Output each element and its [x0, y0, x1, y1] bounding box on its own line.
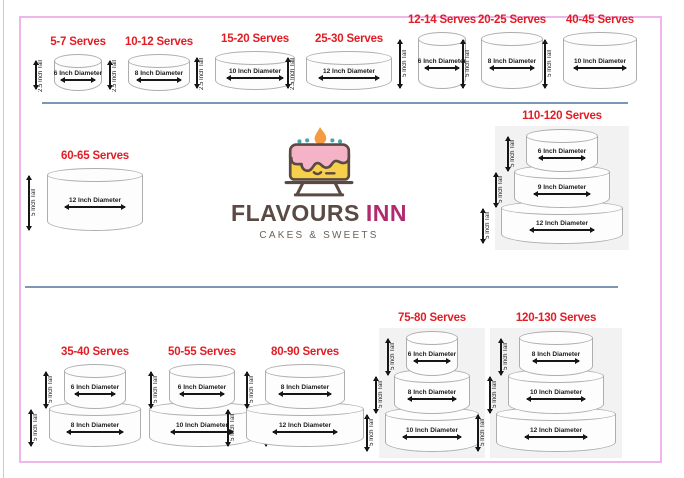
height-label: 2.5 Inch Tall [199, 58, 205, 90]
diameter-arrow-icon [65, 206, 125, 208]
cake-tier: 5 Inch Tall 8 Inch Diameter [519, 338, 593, 376]
diameter-label: 12 Inch Diameter [530, 427, 582, 434]
diameter-arrow-icon [61, 79, 95, 81]
serves-heading: 40-45 Serves [566, 14, 634, 26]
brand-tagline: CAKES & SWEETS [259, 230, 378, 241]
height-label: 5 Inch Tall [480, 419, 486, 446]
diameter-label: 8 Inch Diameter [135, 70, 183, 77]
height-dimension: 2.5 Inch Tall [196, 58, 205, 90]
height-arrow-icon [30, 410, 32, 446]
serves-heading: 80-90 Serves [271, 346, 339, 358]
cake-tier: 5 Inch Tall 8 Inch Diameter [49, 409, 141, 447]
height-dimension: 5 Inch Tall [246, 372, 255, 408]
height-dimension: 5 Inch Tall [507, 137, 516, 171]
diameter-arrow-icon [75, 393, 115, 395]
serves-heading: 60-65 Serves [61, 150, 129, 162]
height-label: 5 Inch Tall [33, 414, 39, 441]
cake-tier: 5 Inch Tall 6 Inch Diameter [418, 39, 466, 89]
diameter-arrow-icon [408, 398, 456, 400]
serves-heading: 110-120 Serves [522, 110, 602, 122]
height-arrow-icon [375, 377, 377, 413]
height-arrow-icon [109, 61, 111, 89]
height-label: 5 Inch Tall [492, 381, 498, 408]
height-label: 2.5 Inch Tall [290, 58, 296, 90]
diameter-arrow-icon [273, 431, 337, 433]
height-label: 2.5 Inch Tall [112, 60, 118, 92]
height-dimension: 5 Inch Tall [544, 40, 553, 88]
height-label: 5 Inch Tall [498, 176, 504, 203]
serves-heading: 120-130 Serves [516, 312, 596, 324]
height-dimension: 5 Inch Tall [28, 176, 37, 230]
height-dimension: 5 Inch Tall [227, 410, 236, 446]
cake-tier: 2.5 Inch Tall 8 Inch Diameter [128, 61, 190, 91]
diameter-label: 8 Inch Diameter [488, 58, 536, 65]
height-dimension: 2.5 Inch Tall [287, 58, 296, 90]
diameter-label: 8 Inch Diameter [71, 422, 119, 429]
diameter-label: 12 Inch Diameter [69, 197, 121, 204]
height-dimension: 5 Inch Tall [482, 209, 491, 243]
height-arrow-icon [150, 372, 152, 408]
height-arrow-icon [482, 209, 484, 243]
cake-size-group: 75-80 Serves 5 Inch Tall 6 Inch Diameter… [374, 312, 490, 458]
diameter-arrow-icon [67, 431, 123, 433]
diameter-arrow-icon [527, 398, 585, 400]
diameter-label: 10 Inch Diameter [574, 58, 626, 65]
cake-size-group: 110-120 Serves 5 Inch Tall 6 Inch Diamet… [486, 110, 638, 250]
height-label: 5 Inch Tall [402, 50, 408, 77]
cake-tier: 5 Inch Tall 6 Inch Diameter [169, 371, 235, 409]
diameter-label: 10 Inch Diameter [229, 68, 281, 75]
diameter-arrow-icon [533, 360, 579, 362]
cake-tier: 2.5 Inch Tall 6 Inch Diameter [54, 61, 102, 91]
diameter-arrow-icon [403, 436, 461, 438]
diameter-label: 12 Inch Diameter [279, 422, 331, 429]
height-arrow-icon [287, 58, 289, 88]
diameter-arrow-icon [279, 393, 331, 395]
diameter-arrow-icon [319, 77, 379, 79]
cake-tier: 5 Inch Tall 12 Inch Diameter [246, 409, 364, 447]
height-dimension: 2.5 Inch Tall [109, 60, 118, 92]
height-arrow-icon [28, 176, 30, 230]
cake-serving-guide: 5-7 Serves 2.5 Inch Tall 6 Inch Diameter… [0, 0, 684, 478]
cake-tier: 5 Inch Tall 8 Inch Diameter [265, 371, 345, 409]
brand-name-primary: FLAVOURS [231, 200, 360, 227]
page-edge-line [3, 0, 4, 478]
cake-tier: 5 Inch Tall 6 Inch Diameter [526, 136, 598, 172]
cake-tier: 5 Inch Tall 9 Inch Diameter [514, 172, 610, 208]
height-arrow-icon [366, 415, 368, 451]
diameter-label: 8 Inch Diameter [281, 384, 329, 391]
group-panel: 5 Inch Tall 6 Inch Diameter 5 Inch Tall … [495, 126, 629, 250]
height-dimension: 5 Inch Tall [495, 173, 504, 207]
diameter-label: 6 Inch Diameter [538, 148, 586, 155]
diameter-arrow-icon [490, 67, 534, 69]
height-arrow-icon [489, 377, 491, 413]
cake-size-group: 40-45 Serves 5 Inch Tall 10 Inch Diamete… [546, 14, 654, 89]
cake-tier: 5 Inch Tall 10 Inch Diameter [149, 409, 255, 447]
diameter-label: 12 Inch Diameter [536, 220, 588, 227]
diameter-arrow-icon [525, 436, 587, 438]
serves-heading: 25-30 Serves [315, 33, 383, 45]
height-label: 5 Inch Tall [485, 212, 491, 239]
diameter-label: 8 Inch Diameter [408, 389, 456, 396]
diameter-label: 12 Inch Diameter [323, 68, 375, 75]
height-dimension: 5 Inch Tall [500, 339, 509, 375]
height-arrow-icon [477, 415, 479, 451]
height-label: 5 Inch Tall [153, 376, 159, 403]
height-arrow-icon [387, 339, 389, 375]
height-arrow-icon [500, 339, 502, 375]
cake-tier: 2.5 Inch Tall 12 Inch Diameter [306, 58, 392, 90]
middle-section-divider [25, 286, 618, 288]
height-label: 5 Inch Tall [378, 381, 384, 408]
height-label: 5 Inch Tall [31, 189, 37, 216]
serves-heading: 50-55 Serves [168, 346, 236, 358]
height-label: 5 Inch Tall [503, 343, 509, 370]
serves-heading: 5-7 Serves [50, 36, 106, 48]
diameter-arrow-icon [180, 393, 224, 395]
height-dimension: 5 Inch Tall [477, 415, 486, 451]
height-dimension: 5 Inch Tall [150, 372, 159, 408]
height-arrow-icon [495, 173, 497, 207]
cake-tier: 5 Inch Tall 12 Inch Diameter [501, 208, 623, 244]
diameter-arrow-icon [574, 67, 626, 69]
cake-tier: 5 Inch Tall 10 Inch Diameter [563, 39, 637, 89]
height-arrow-icon [507, 137, 509, 171]
cake-tier: 2.5 Inch Tall 10 Inch Diameter [215, 58, 295, 90]
group-panel: 5 Inch Tall 6 Inch Diameter 5 Inch Tall … [379, 328, 485, 458]
brand-name-secondary: INN [366, 200, 407, 227]
cake-tier: 5 Inch Tall 12 Inch Diameter [47, 175, 143, 231]
diameter-arrow-icon [425, 67, 459, 69]
diameter-label: 8 Inch Diameter [532, 351, 580, 358]
height-arrow-icon [45, 372, 47, 408]
height-label: 5 Inch Tall [230, 414, 236, 441]
height-label: 2.5 Inch Tall [38, 60, 44, 92]
height-dimension: 5 Inch Tall [45, 372, 54, 408]
diameter-label: 6 Inch Diameter [178, 384, 226, 391]
serves-heading: 75-80 Serves [398, 312, 466, 324]
diameter-label: 10 Inch Diameter [406, 427, 458, 434]
diameter-label: 10 Inch Diameter [176, 422, 228, 429]
height-arrow-icon [35, 61, 37, 89]
diameter-arrow-icon [539, 157, 585, 159]
serves-heading: 35-40 Serves [61, 346, 129, 358]
height-arrow-icon [246, 372, 248, 408]
height-arrow-icon [544, 40, 546, 88]
cake-size-group: 60-65 Serves 5 Inch Tall 12 Inch Diamete… [28, 150, 162, 231]
diameter-label: 9 Inch Diameter [538, 184, 586, 191]
diameter-arrow-icon [530, 229, 594, 231]
height-label: 5 Inch Tall [510, 140, 516, 167]
height-arrow-icon [462, 40, 464, 88]
cake-tier: 5 Inch Tall 6 Inch Diameter [406, 338, 458, 376]
serves-heading: 20-25 Serves [478, 14, 546, 26]
cake-tier: 5 Inch Tall 8 Inch Diameter [394, 376, 470, 414]
diameter-arrow-icon [227, 77, 283, 79]
height-dimension: 5 Inch Tall [399, 40, 408, 88]
diameter-label: 10 Inch Diameter [530, 389, 582, 396]
cake-tier: 5 Inch Tall 10 Inch Diameter [508, 376, 604, 414]
cake-tier: 5 Inch Tall 12 Inch Diameter [496, 414, 616, 452]
cake-tier: 5 Inch Tall 10 Inch Diameter [385, 414, 479, 452]
height-label: 5 Inch Tall [465, 50, 471, 77]
height-dimension: 5 Inch Tall [387, 339, 396, 375]
height-label: 5 Inch Tall [369, 419, 375, 446]
height-dimension: 5 Inch Tall [462, 40, 471, 88]
height-label: 5 Inch Tall [390, 343, 396, 370]
height-label: 5 Inch Tall [547, 50, 553, 77]
group-panel: 5 Inch Tall 8 Inch Diameter 5 Inch Tall … [490, 328, 622, 458]
height-arrow-icon [196, 58, 198, 88]
height-arrow-icon [227, 410, 229, 446]
height-dimension: 5 Inch Tall [366, 415, 375, 451]
height-label: 5 Inch Tall [249, 376, 255, 403]
height-dimension: 5 Inch Tall [30, 410, 39, 446]
height-dimension: 5 Inch Tall [489, 377, 498, 413]
height-label: 5 Inch Tall [48, 376, 54, 403]
diameter-arrow-icon [534, 193, 590, 195]
height-dimension: 2.5 Inch Tall [35, 60, 44, 92]
diameter-arrow-icon [171, 431, 233, 433]
diameter-arrow-icon [414, 360, 450, 362]
serves-heading: 10-12 Serves [125, 36, 193, 48]
cake-logo-icon [282, 126, 356, 198]
diameter-arrow-icon [137, 79, 181, 81]
cake-tier: 5 Inch Tall 8 Inch Diameter [481, 39, 543, 89]
top-section-divider [42, 102, 628, 104]
height-dimension: 5 Inch Tall [375, 377, 384, 413]
cake-size-group: 80-90 Serves 5 Inch Tall 8 Inch Diameter… [236, 346, 374, 447]
height-arrow-icon [399, 40, 401, 88]
cake-size-group: 25-30 Serves 2.5 Inch Tall 12 Inch Diame… [290, 33, 408, 90]
brand-logo: FLAVOURS INN CAKES & SWEETS [224, 126, 414, 241]
serves-heading: 15-20 Serves [221, 33, 289, 45]
cake-size-group: 120-130 Serves 5 Inch Tall 8 Inch Diamet… [486, 312, 626, 458]
cake-tier: 5 Inch Tall 6 Inch Diameter [64, 371, 126, 409]
